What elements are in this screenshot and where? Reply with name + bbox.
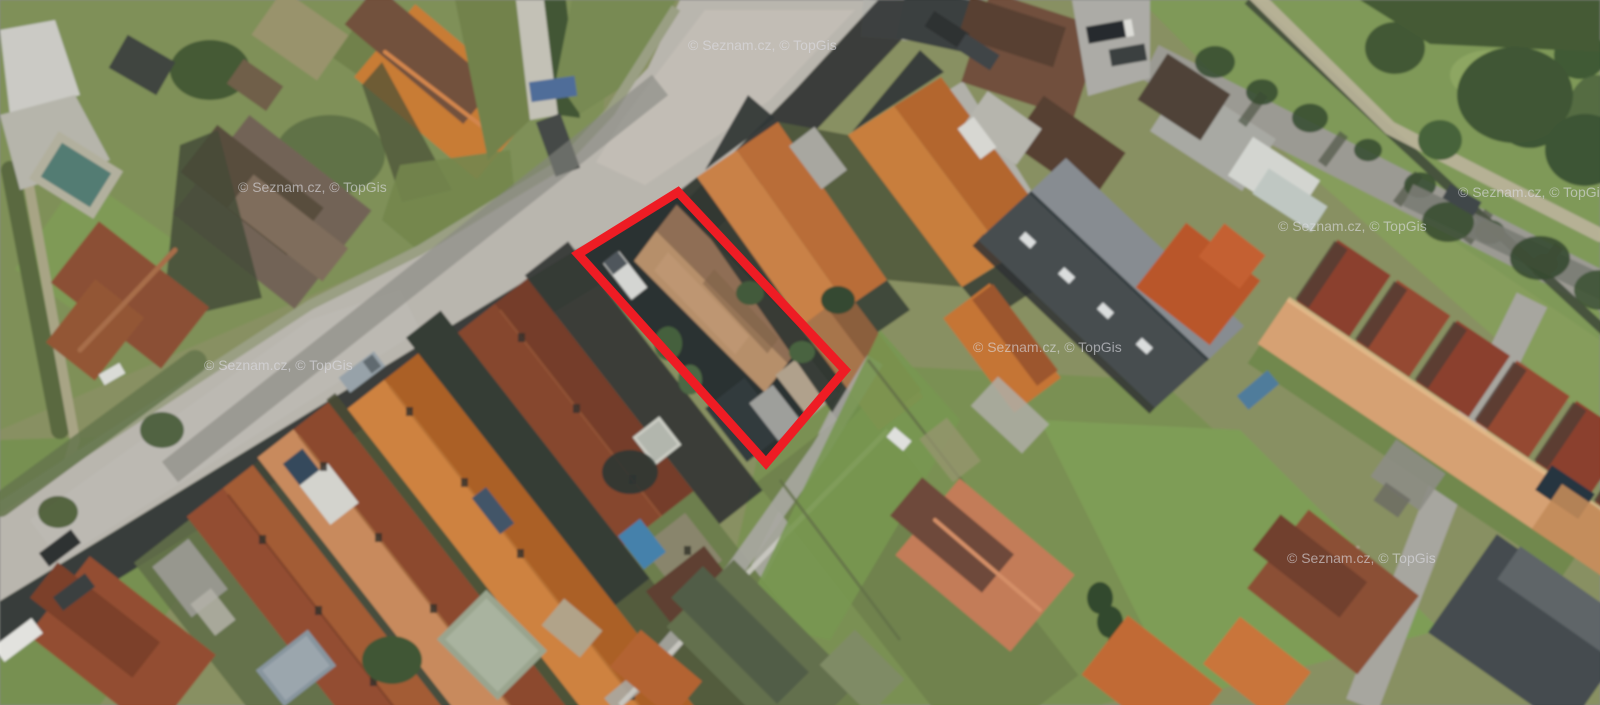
svg-text:© Seznam.cz, © TopGis: © Seznam.cz, © TopGis [238, 179, 387, 195]
svg-text:© Seznam.cz, © TopGis: © Seznam.cz, © TopGis [973, 339, 1122, 355]
svg-text:© Seznam.cz, © TopGis: © Seznam.cz, © TopGis [1278, 218, 1427, 234]
svg-text:© Seznam.cz, © TopGis: © Seznam.cz, © TopGis [204, 357, 353, 373]
svg-text:© Seznam.cz, © TopGis: © Seznam.cz, © TopGis [1458, 184, 1600, 200]
svg-text:© Seznam.cz, © TopGis: © Seznam.cz, © TopGis [688, 37, 837, 53]
svg-text:© Seznam.cz, © TopGis: © Seznam.cz, © TopGis [1287, 550, 1436, 566]
